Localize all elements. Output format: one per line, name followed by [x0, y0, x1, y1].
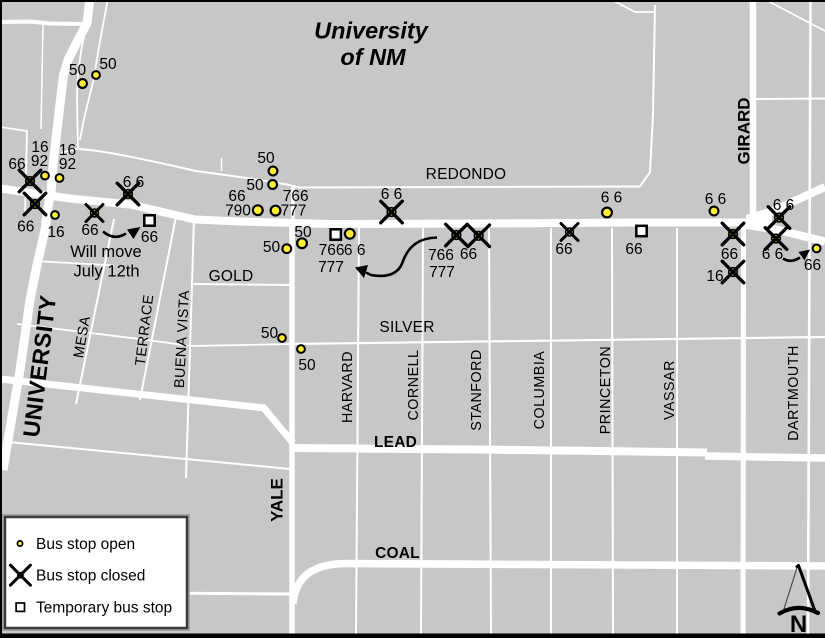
svg-text:16: 16 — [47, 224, 64, 241]
svg-text:92: 92 — [31, 153, 48, 170]
svg-text:LEAD: LEAD — [374, 434, 417, 451]
svg-text:REDONDO: REDONDO — [426, 166, 507, 183]
svg-text:Bus stop closed: Bus stop closed — [36, 568, 145, 585]
svg-text:50: 50 — [261, 325, 279, 342]
svg-text:6 6: 6 6 — [601, 190, 623, 207]
svg-text:COAL: COAL — [375, 545, 420, 562]
svg-text:6 6: 6 6 — [705, 191, 727, 208]
svg-text:766: 766 — [428, 247, 454, 264]
svg-text:of NM: of NM — [340, 44, 406, 70]
svg-text:COLUMBIA: COLUMBIA — [532, 351, 548, 430]
svg-text:6 6: 6 6 — [344, 242, 366, 259]
svg-text:50: 50 — [246, 177, 264, 194]
svg-text:50: 50 — [298, 357, 316, 374]
svg-text:SILVER: SILVER — [379, 319, 434, 336]
svg-text:July 12th: July 12th — [73, 263, 139, 281]
svg-text:Will move: Will move — [70, 243, 142, 261]
svg-text:766: 766 — [319, 242, 345, 259]
svg-text:777: 777 — [281, 203, 307, 220]
svg-text:50: 50 — [69, 62, 87, 79]
svg-text:790: 790 — [225, 203, 251, 220]
svg-text:Bus stop open: Bus stop open — [36, 536, 135, 553]
svg-text:92: 92 — [59, 156, 76, 173]
svg-text:66: 66 — [141, 229, 158, 246]
svg-text:66: 66 — [8, 156, 25, 173]
svg-text:GIRARD: GIRARD — [735, 97, 754, 164]
svg-text:University: University — [314, 18, 430, 44]
svg-text:66: 66 — [804, 257, 821, 274]
svg-text:66: 66 — [625, 241, 642, 258]
svg-text:HARVARD: HARVARD — [340, 351, 356, 423]
svg-text:50: 50 — [257, 150, 275, 167]
svg-text:50: 50 — [99, 56, 117, 73]
svg-text:CORNELL: CORNELL — [406, 349, 422, 420]
svg-text:Temporary bus stop: Temporary bus stop — [36, 600, 172, 617]
svg-text:50: 50 — [263, 239, 281, 256]
svg-text:777: 777 — [429, 264, 455, 281]
svg-text:STANFORD: STANFORD — [469, 349, 485, 431]
svg-text:777: 777 — [318, 259, 344, 276]
svg-text:DARTMOUTH: DARTMOUTH — [786, 345, 802, 441]
svg-text:66: 66 — [555, 241, 572, 258]
svg-text:66: 66 — [81, 222, 98, 239]
svg-text:6 6: 6 6 — [381, 186, 403, 203]
svg-text:PRINCETON: PRINCETON — [598, 346, 614, 434]
svg-text:YALE: YALE — [268, 478, 287, 522]
svg-text:66: 66 — [17, 219, 34, 236]
svg-text:66: 66 — [460, 246, 477, 263]
svg-text:GOLD: GOLD — [209, 268, 254, 285]
svg-text:VASSAR: VASSAR — [662, 360, 678, 420]
